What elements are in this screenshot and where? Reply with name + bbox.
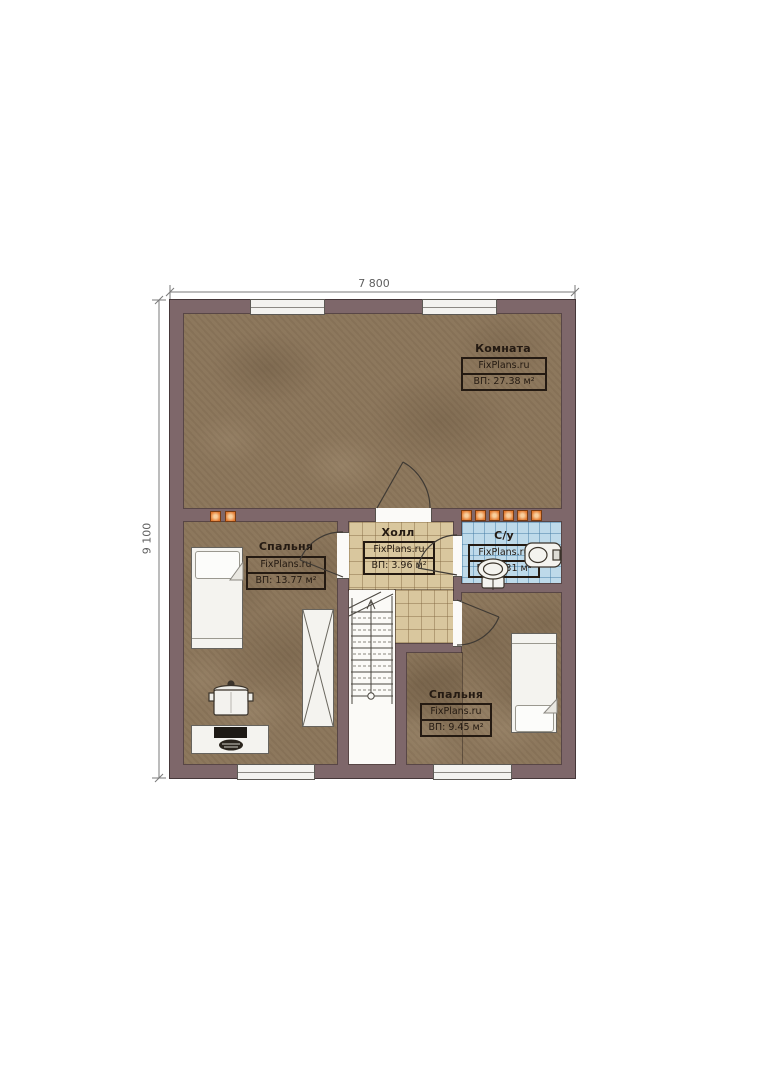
glass-block-icon bbox=[225, 511, 236, 522]
bed-icon bbox=[191, 547, 243, 649]
glass-block-icon bbox=[531, 510, 542, 521]
room-infobox-bathroom: FixPlans.ru ВП: 2.31 м² bbox=[468, 544, 540, 578]
glass-block-icon bbox=[461, 510, 472, 521]
window-top-left bbox=[250, 299, 325, 315]
window-bottom-right bbox=[433, 764, 512, 780]
room-label-bedroom-right: Спальня bbox=[420, 688, 492, 701]
glass-block-icon bbox=[489, 510, 500, 521]
room-area-bedroom-right: ВП: 9.45 м² bbox=[422, 719, 490, 735]
door-opening-bathroom bbox=[453, 535, 462, 577]
room-infobox-bedroom-right: FixPlans.ru ВП: 9.45 м² bbox=[420, 703, 492, 737]
watermark: FixPlans.ru bbox=[248, 558, 324, 572]
door-opening-bedroom-left bbox=[337, 532, 349, 579]
room-infobox-hall: FixPlans.ru ВП: 3.96 м² bbox=[363, 541, 435, 575]
bed-footer-line bbox=[512, 643, 556, 644]
room-infobox-living: FixPlans.ru ВП: 27.38 м² bbox=[461, 357, 547, 391]
dimension-height-label: 9 100 bbox=[141, 517, 154, 561]
room-label-bathroom: С/у bbox=[468, 529, 540, 542]
room-area-bedroom-left: ВП: 13.77 м² bbox=[248, 572, 324, 588]
bed-footer-line bbox=[192, 638, 242, 639]
stairwell-floor bbox=[349, 590, 395, 764]
window-top-right bbox=[422, 299, 497, 315]
glass-block-icon bbox=[475, 510, 486, 521]
watermark: FixPlans.ru bbox=[422, 705, 490, 719]
door-opening-bedroom-right bbox=[453, 600, 462, 647]
watermark: FixPlans.ru bbox=[463, 359, 545, 373]
pillow-icon bbox=[195, 551, 240, 579]
bed-icon bbox=[511, 633, 557, 733]
room-area-bathroom: ВП: 2.31 м² bbox=[470, 560, 538, 576]
room-label-hall: Холл bbox=[363, 526, 433, 539]
room-infobox-bedroom-left: FixPlans.ru ВП: 13.77 м² bbox=[246, 556, 326, 590]
room-area-living: ВП: 27.38 м² bbox=[463, 373, 545, 389]
door-opening-living bbox=[375, 508, 432, 522]
pillow-icon bbox=[515, 705, 554, 732]
watermark: FixPlans.ru bbox=[470, 546, 538, 560]
glass-block-icon bbox=[517, 510, 528, 521]
room-label-living: Комната bbox=[455, 342, 551, 355]
floor-plan: Комната FixPlans.ru ВП: 27.38 м² Спальня… bbox=[170, 300, 575, 778]
window-bottom-left bbox=[237, 764, 315, 780]
dimension-width-label: 7 800 bbox=[352, 277, 396, 290]
floor-plan-canvas: 7 800 9 100 bbox=[0, 0, 763, 1080]
glass-block-icon bbox=[210, 511, 221, 522]
room-hall-floor-right bbox=[395, 590, 453, 643]
wardrobe-icon bbox=[302, 609, 334, 727]
desk-icon bbox=[191, 725, 269, 754]
room-area-hall: ВП: 3.96 м² bbox=[365, 557, 433, 573]
room-label-bedroom-left: Спальня bbox=[246, 540, 326, 553]
glass-block-icon bbox=[503, 510, 514, 521]
watermark: FixPlans.ru bbox=[365, 543, 433, 557]
